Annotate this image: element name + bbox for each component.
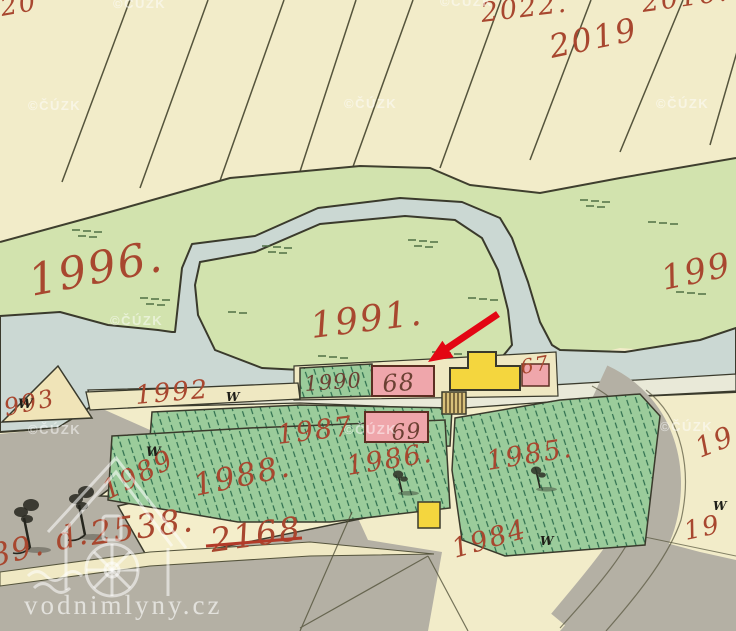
cuzk-watermark: ©ČÚZK — [110, 313, 163, 328]
building-label-67: 67 — [519, 350, 552, 379]
meadow-w-symbol: W — [540, 534, 555, 548]
building-yellow-small — [418, 502, 440, 528]
cuzk-watermark: ©ČÚZK — [440, 0, 493, 9]
meadow-w-symbol: W — [713, 499, 728, 513]
meadow-w-symbol: W — [226, 390, 241, 404]
building-label-68: 68 — [381, 368, 415, 398]
vodnimlyny-watermark-text: vodnimlyny.cz — [24, 590, 222, 620]
cuzk-watermark: ©ČÚZK — [344, 422, 397, 437]
cuzk-watermark: ©ČÚZK — [660, 419, 713, 434]
meadow-w-symbol: W — [146, 445, 162, 460]
cuzk-watermark: ©ČÚZK — [344, 96, 397, 111]
weir-icon — [442, 392, 466, 414]
parcel-label-1990: 1990 — [304, 368, 363, 396]
mill-wheel-icon — [86, 544, 138, 596]
cuzk-watermark: ©ČÚZK — [113, 0, 166, 11]
cuzk-watermark: ©ČÚZK — [28, 422, 81, 437]
cadastral-map: 20 2022. 2019 2016. 1996. 1991. 199 993 … — [0, 0, 736, 631]
cuzk-watermark: ©ČÚZK — [28, 98, 81, 113]
meadow-w-symbol: W — [18, 397, 34, 412]
map-canvas: 20 2022. 2019 2016. 1996. 1991. 199 993 … — [0, 0, 736, 631]
cuzk-watermark: ©ČÚZK — [656, 96, 709, 111]
